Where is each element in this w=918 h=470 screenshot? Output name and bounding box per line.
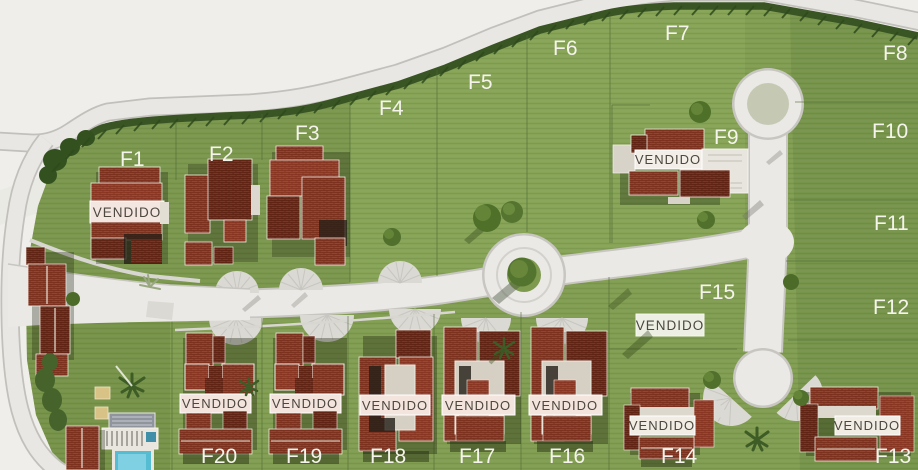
svg-text:VENDIDO: VENDIDO — [636, 318, 705, 333]
svg-text:VENDIDO: VENDIDO — [93, 205, 162, 220]
svg-text:F11: F11 — [874, 212, 909, 235]
svg-text:F12: F12 — [873, 296, 909, 319]
svg-text:F20: F20 — [201, 445, 237, 468]
svg-text:F9: F9 — [714, 126, 739, 149]
svg-text:VENDIDO: VENDIDO — [445, 398, 511, 413]
svg-text:VENDIDO: VENDIDO — [834, 418, 900, 433]
svg-text:F13: F13 — [875, 445, 911, 468]
svg-text:F17: F17 — [459, 445, 495, 468]
svg-text:F6: F6 — [553, 37, 578, 60]
svg-text:F15: F15 — [699, 281, 735, 304]
svg-text:F19: F19 — [286, 445, 322, 468]
svg-text:F3: F3 — [295, 122, 320, 145]
svg-text:VENDIDO: VENDIDO — [629, 418, 695, 433]
svg-text:F5: F5 — [468, 71, 493, 94]
svg-text:VENDIDO: VENDIDO — [362, 398, 428, 413]
svg-text:F4: F4 — [379, 97, 404, 120]
svg-text:F18: F18 — [370, 445, 406, 468]
svg-text:VENDIDO: VENDIDO — [272, 396, 338, 411]
svg-text:F8: F8 — [883, 42, 908, 65]
svg-text:VENDIDO: VENDIDO — [182, 396, 248, 411]
svg-text:F7: F7 — [665, 22, 690, 45]
svg-text:F1: F1 — [120, 148, 145, 171]
svg-text:F2: F2 — [209, 143, 234, 166]
svg-text:F14: F14 — [661, 445, 698, 468]
svg-text:F16: F16 — [549, 445, 585, 468]
svg-text:VENDIDO: VENDIDO — [532, 398, 598, 413]
svg-text:VENDIDO: VENDIDO — [635, 152, 701, 167]
svg-text:F10: F10 — [872, 120, 908, 143]
